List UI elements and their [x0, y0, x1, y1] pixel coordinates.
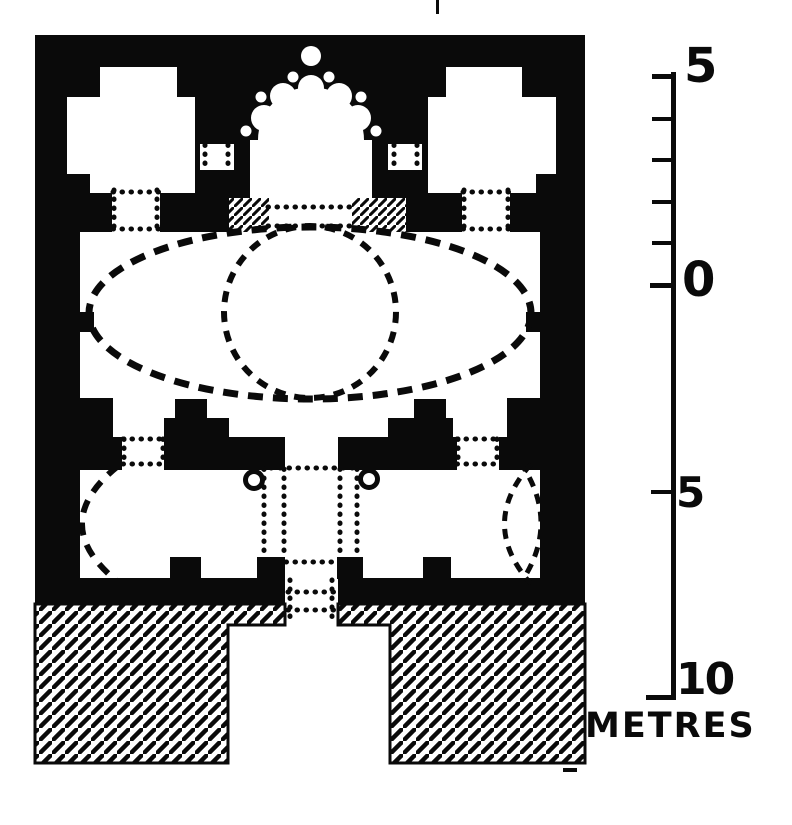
lower-room-pier [423, 557, 451, 579]
pier-step [164, 418, 229, 438]
podium-left-block [35, 604, 285, 763]
scale-label-5-lower: 5 [676, 472, 705, 514]
scale-label-0: 0 [682, 256, 715, 304]
scale-bar-line [671, 72, 676, 700]
scale-label-10: 10 [676, 658, 733, 702]
scale-tick [650, 283, 672, 288]
floor-plan-drawing [0, 0, 792, 825]
lower-left-apse-outline [82, 466, 118, 582]
figure-canvas: 5 0 5 10 METRES [0, 0, 792, 825]
pier-step [507, 398, 540, 437]
lower-right-circle-outline [505, 464, 532, 584]
apse-column-dot [324, 72, 335, 83]
apse-column-dot [371, 126, 382, 137]
south-wall-right [338, 578, 585, 604]
lower-band-pier [338, 437, 457, 470]
passage-pier [257, 557, 285, 579]
top-register-mark [436, 0, 439, 14]
doorway-upper-right [462, 188, 510, 232]
dome-circle-outline [224, 226, 396, 398]
scale-tick [652, 158, 672, 162]
hall-oval-outline [89, 227, 531, 399]
apse-column-dot [256, 92, 267, 103]
doorway-upper-left [112, 188, 160, 232]
podium-right-block [338, 604, 585, 763]
room-top-right-body [428, 97, 556, 174]
scale-tick [652, 200, 672, 204]
room-top-left-body [67, 97, 195, 174]
apse-outer-niche [301, 46, 321, 66]
lower-right-circle-outline [520, 462, 541, 584]
room-top-right-north-arm [446, 67, 522, 98]
apse-column-dot [288, 72, 299, 83]
column-circle [246, 472, 263, 489]
column-circle [361, 471, 378, 488]
lower-band-pier [164, 437, 285, 470]
scale-label-5-upper: 5 [684, 42, 717, 90]
room-top-left-north-arm [100, 67, 177, 98]
scale-tick [652, 241, 672, 245]
pier-step [388, 418, 453, 438]
apse-mouth [250, 140, 372, 198]
pier-step [80, 398, 113, 437]
passage-pier [337, 557, 363, 579]
scale-bar-foot [646, 695, 674, 700]
scale-unit-label: METRES [585, 709, 756, 744]
scale-tick [652, 74, 674, 79]
scale-tick [651, 490, 672, 494]
apse-column-dot [241, 126, 252, 137]
south-wall-left [35, 578, 285, 604]
podium [35, 604, 585, 763]
bottom-register-mark [563, 768, 577, 772]
scale-tick [652, 117, 672, 121]
apse-column-dot [356, 92, 367, 103]
lower-room-pier [170, 557, 201, 579]
hall-piers [80, 312, 540, 579]
dotted-outlines [82, 226, 541, 584]
scale-bar [646, 72, 676, 700]
